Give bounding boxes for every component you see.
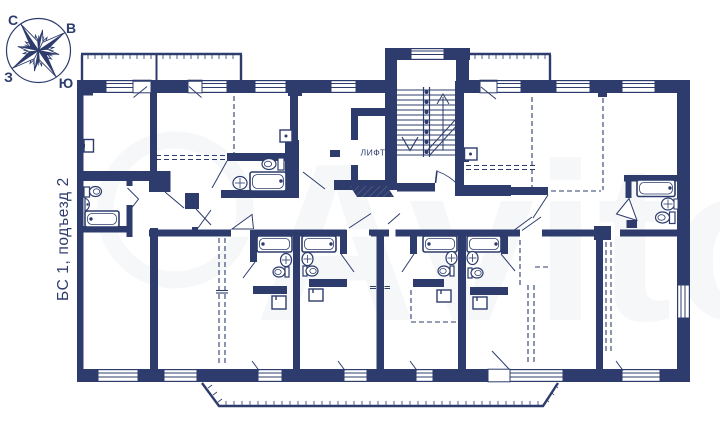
svg-text:З: З <box>4 69 13 85</box>
svg-text:БС 1, подъезд 2: БС 1, подъезд 2 <box>55 177 72 301</box>
svg-text:ЛИФТ: ЛИФТ <box>360 148 385 158</box>
svg-text:С: С <box>8 12 18 28</box>
svg-text:Ю: Ю <box>59 75 73 91</box>
svg-text:В: В <box>66 20 76 36</box>
